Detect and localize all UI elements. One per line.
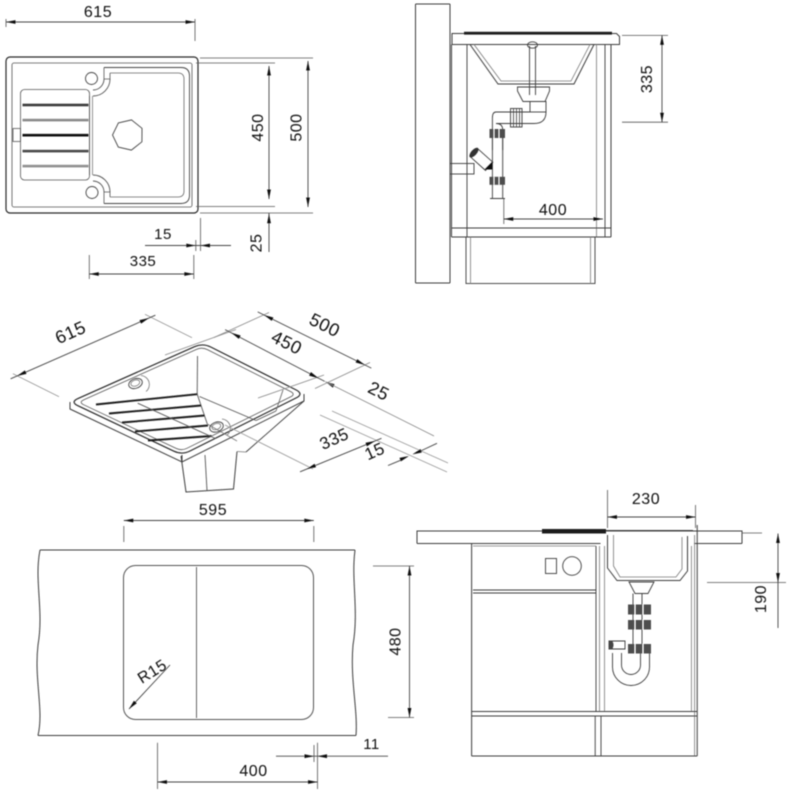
svg-text:230: 230 (632, 491, 660, 508)
svg-text:400: 400 (239, 763, 267, 780)
svg-text:335: 335 (639, 65, 656, 93)
svg-text:11: 11 (363, 736, 380, 753)
svg-text:335: 335 (130, 253, 157, 270)
svg-text:500: 500 (289, 113, 306, 141)
svg-text:480: 480 (388, 627, 405, 655)
svg-text:595: 595 (199, 502, 227, 519)
svg-text:190: 190 (753, 585, 770, 613)
svg-text:15: 15 (154, 226, 172, 243)
svg-text:400: 400 (539, 202, 567, 219)
svg-text:450: 450 (250, 113, 267, 141)
svg-text:25: 25 (249, 234, 266, 253)
svg-text:615: 615 (84, 4, 112, 21)
